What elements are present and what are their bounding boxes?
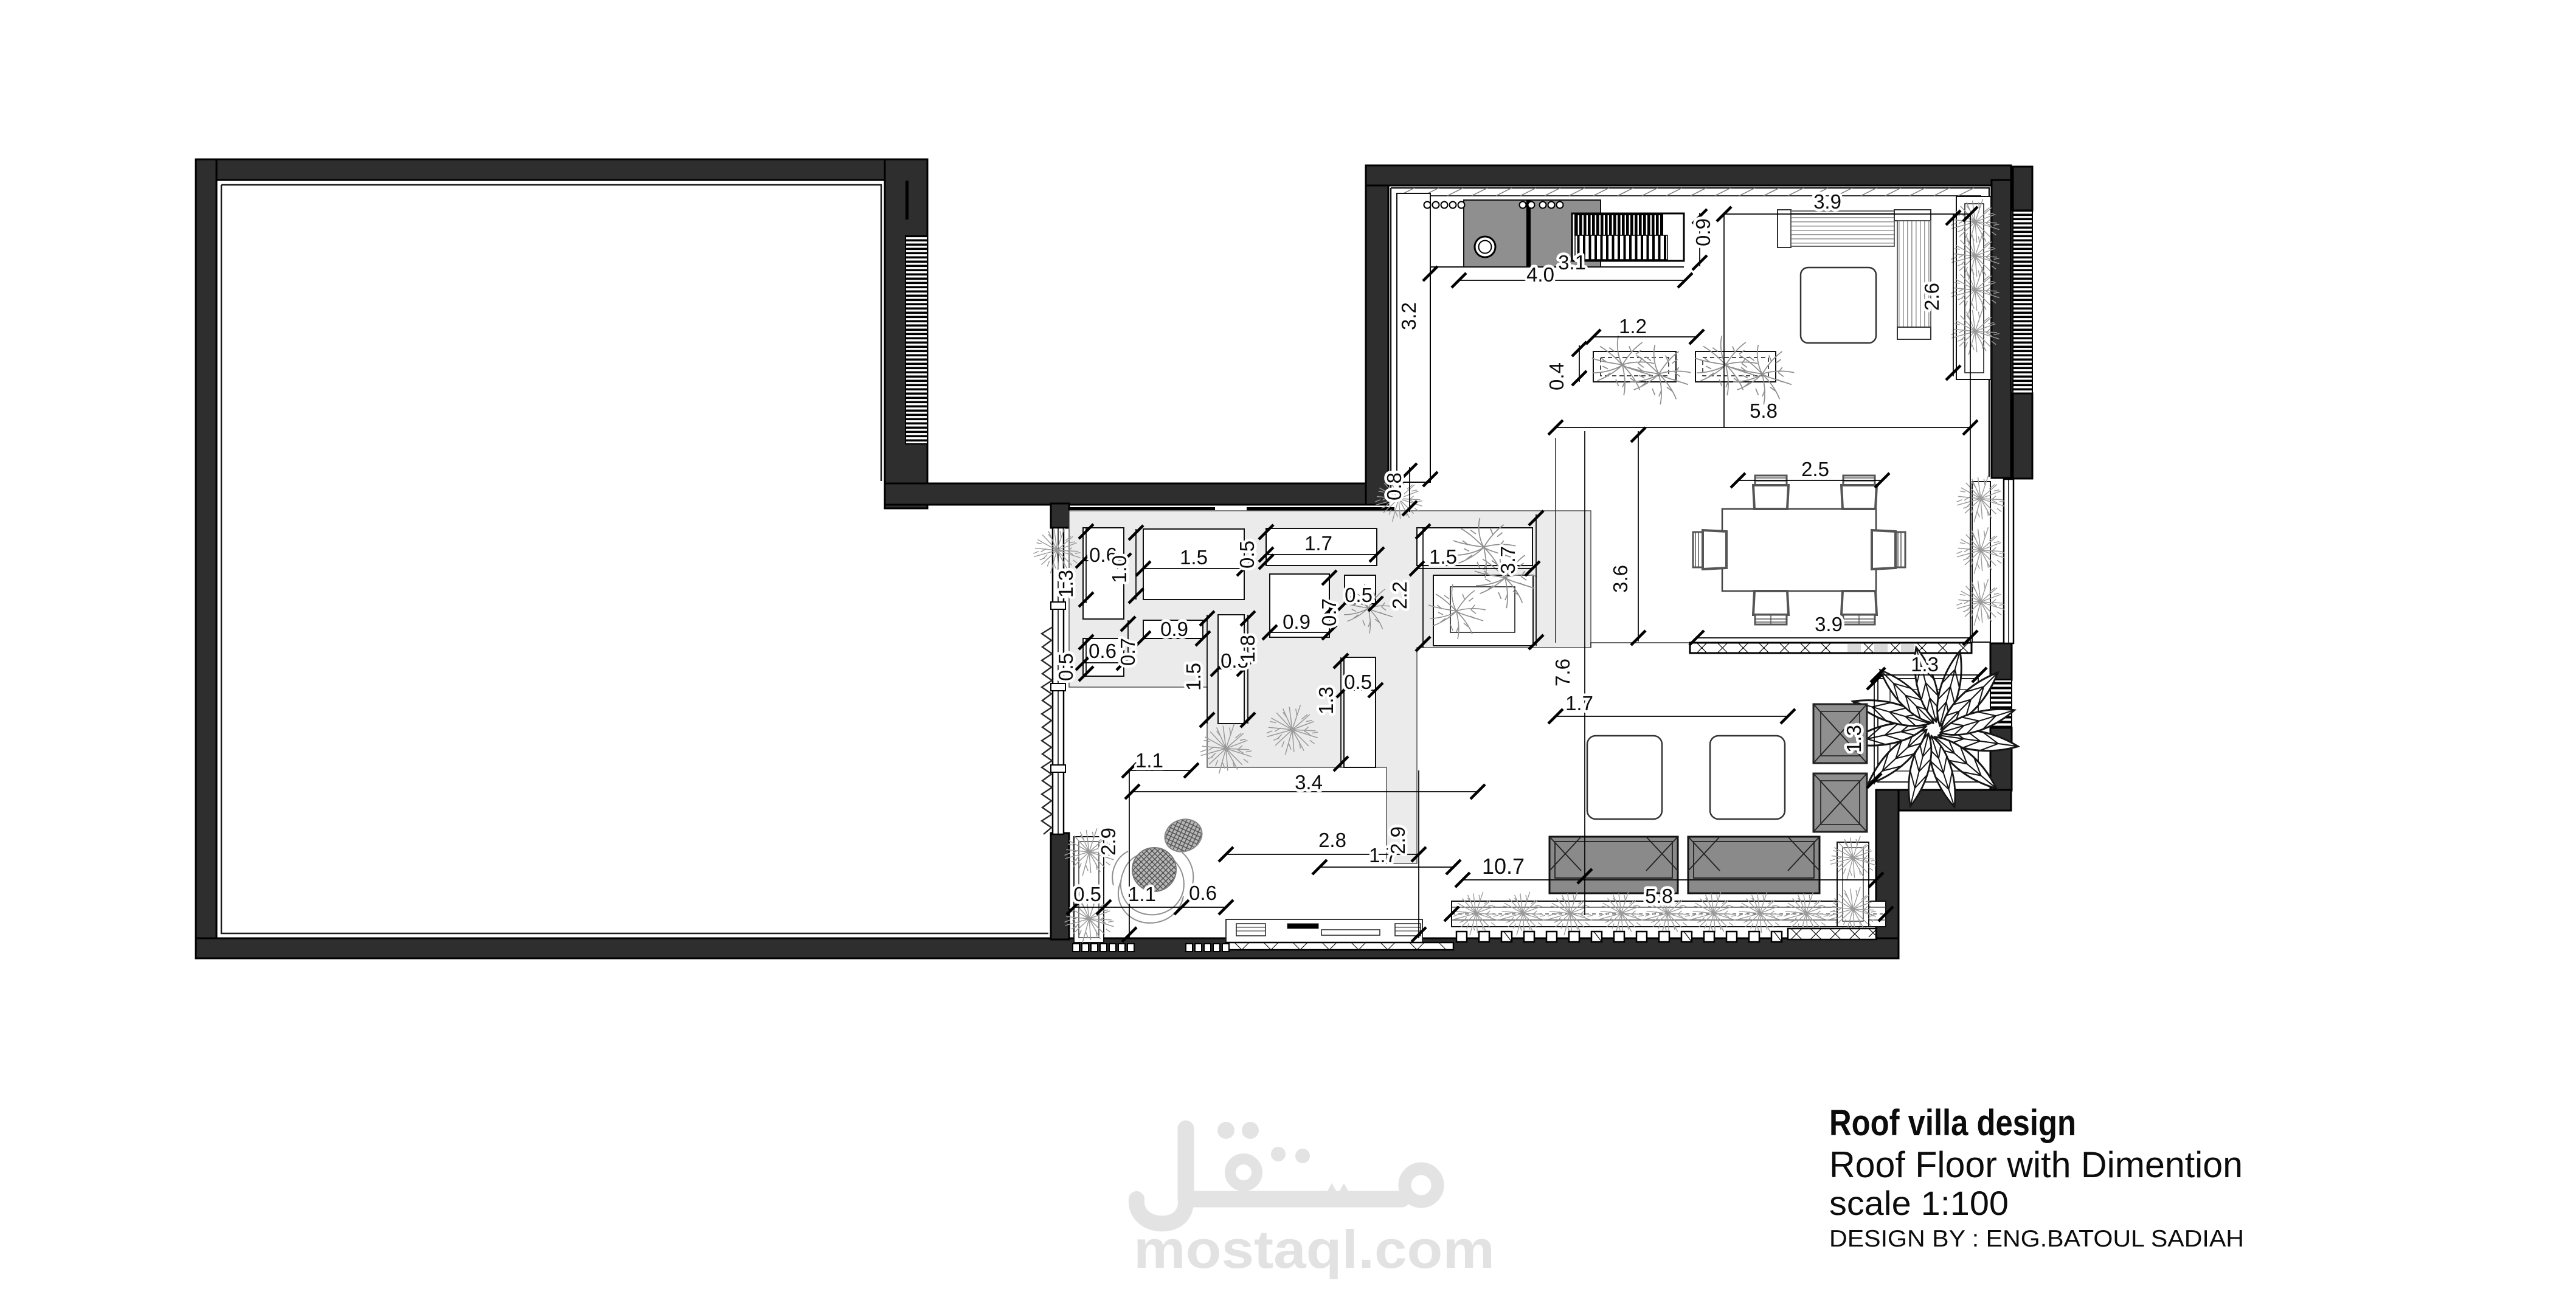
svg-text:0.4: 0.4 xyxy=(1545,362,1568,390)
svg-text:2.9: 2.9 xyxy=(1387,826,1409,854)
svg-text:0.5: 0.5 xyxy=(1073,883,1101,905)
svg-text:5.8: 5.8 xyxy=(1750,399,1778,422)
svg-text:scale 1:100: scale 1:100 xyxy=(1829,1184,2009,1222)
svg-text:3.1: 3.1 xyxy=(1558,251,1586,274)
svg-text:1.5: 1.5 xyxy=(1180,546,1208,569)
svg-text:1.5: 1.5 xyxy=(1182,663,1205,691)
svg-text:1.3: 1.3 xyxy=(1315,687,1337,714)
svg-text:0.7: 0.7 xyxy=(1318,598,1340,626)
svg-text:Roof Floor with Dimention: Roof Floor with Dimention xyxy=(1829,1144,2243,1185)
svg-text:3.4: 3.4 xyxy=(1295,771,1323,794)
svg-text:1.8: 1.8 xyxy=(1236,635,1259,663)
svg-text:2.6: 2.6 xyxy=(1920,283,1943,311)
svg-text:3.6: 3.6 xyxy=(1609,565,1632,593)
svg-text:mostaql.com: mostaql.com xyxy=(1134,1219,1495,1279)
svg-text:3.7: 3.7 xyxy=(1497,546,1519,574)
svg-text:1.5: 1.5 xyxy=(1429,545,1457,568)
svg-text:2.2: 2.2 xyxy=(1388,581,1411,609)
svg-text:10.7: 10.7 xyxy=(1482,854,1525,879)
svg-text:0.5: 0.5 xyxy=(1054,653,1077,681)
svg-text:0.7: 0.7 xyxy=(1117,638,1139,666)
svg-text:1.7: 1.7 xyxy=(1304,532,1332,555)
svg-text:3.9: 3.9 xyxy=(1815,613,1843,635)
svg-text:0.5: 0.5 xyxy=(1344,671,1372,693)
svg-text:0.9: 0.9 xyxy=(1283,610,1311,633)
svg-text:1.3: 1.3 xyxy=(1911,653,1939,676)
svg-text:1.3: 1.3 xyxy=(1054,570,1077,598)
svg-text:1.3: 1.3 xyxy=(1843,725,1865,753)
svg-text:1.2: 1.2 xyxy=(1619,315,1647,337)
svg-text:7.6: 7.6 xyxy=(1551,659,1574,687)
svg-text:2.5: 2.5 xyxy=(1801,458,1829,480)
svg-text:0.9: 0.9 xyxy=(1160,618,1188,640)
svg-text:1.7: 1.7 xyxy=(1565,692,1593,714)
svg-text:0.9: 0.9 xyxy=(1692,218,1714,246)
svg-text:0.5: 0.5 xyxy=(1345,584,1373,606)
svg-text:3.2: 3.2 xyxy=(1397,302,1420,330)
svg-text:DESIGN BY : ENG.BATOUL SADIAH: DESIGN BY : ENG.BATOUL SADIAH xyxy=(1829,1226,2244,1252)
svg-text:0.5: 0.5 xyxy=(1236,541,1258,569)
svg-text:1.1: 1.1 xyxy=(1128,883,1156,905)
svg-text:3.9: 3.9 xyxy=(1813,190,1841,213)
svg-text:1.1: 1.1 xyxy=(1135,749,1163,772)
svg-text:1.0: 1.0 xyxy=(1108,555,1130,583)
svg-text:0.6: 0.6 xyxy=(1189,882,1217,904)
svg-text:0.8: 0.8 xyxy=(1383,472,1405,500)
svg-text:2.8: 2.8 xyxy=(1318,829,1346,851)
svg-text:5.8: 5.8 xyxy=(1645,885,1673,907)
svg-text:2.9: 2.9 xyxy=(1097,828,1120,856)
svg-text:Roof villa design: Roof villa design xyxy=(1829,1102,2076,1143)
svg-text:4.0: 4.0 xyxy=(1526,263,1554,286)
svg-text:0.6: 0.6 xyxy=(1089,640,1117,662)
